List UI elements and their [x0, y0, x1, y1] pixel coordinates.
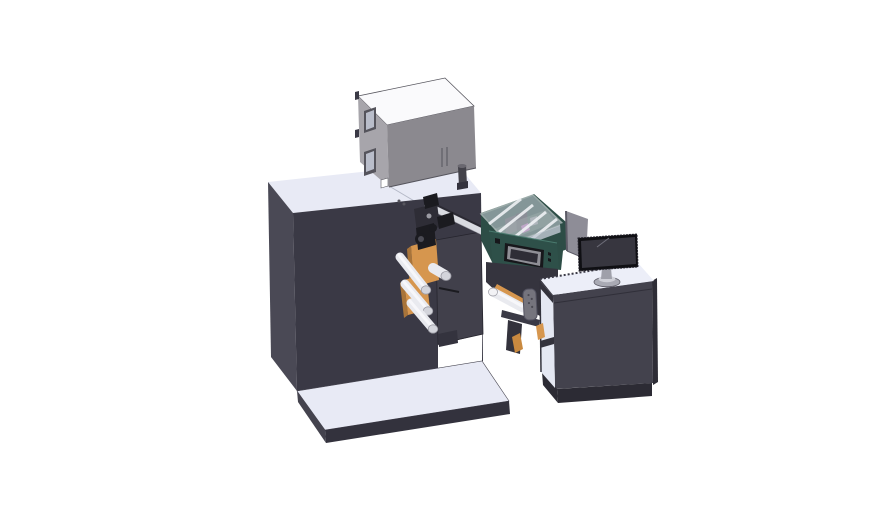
box-hinge-lower — [355, 129, 359, 138]
desk-front-face — [553, 281, 653, 389]
module-latch — [495, 238, 500, 244]
desk-monitor-screen — [581, 237, 636, 268]
monitor-side-panel-left-edge — [566, 211, 567, 251]
turret-plate — [436, 232, 483, 347]
top-bolt-2 — [403, 203, 406, 206]
top-bolt-1 — [398, 200, 401, 203]
guide-roller-3-cap — [428, 325, 438, 333]
box-hinge-upper — [355, 91, 359, 100]
grip-handle — [523, 289, 538, 321]
mech-gear — [429, 224, 437, 232]
guide-roller-1-cap — [421, 286, 431, 294]
mech-roller-knob-hub — [418, 236, 424, 242]
guide-roller-stub-cap — [441, 272, 451, 281]
machine-render — [0, 0, 888, 522]
bracket-roller-cap — [489, 288, 498, 296]
desk-right-face — [652, 278, 658, 385]
machine-render-canvas — [0, 0, 888, 522]
box-cylinder-top — [458, 164, 467, 168]
box-window-upper-glass — [366, 110, 374, 130]
grip-handle-body — [523, 289, 538, 321]
mech-pin — [427, 214, 432, 219]
box-window-lower-glass — [366, 151, 374, 172]
cabinet-left-face — [268, 182, 297, 391]
box-label-plate — [381, 178, 388, 188]
